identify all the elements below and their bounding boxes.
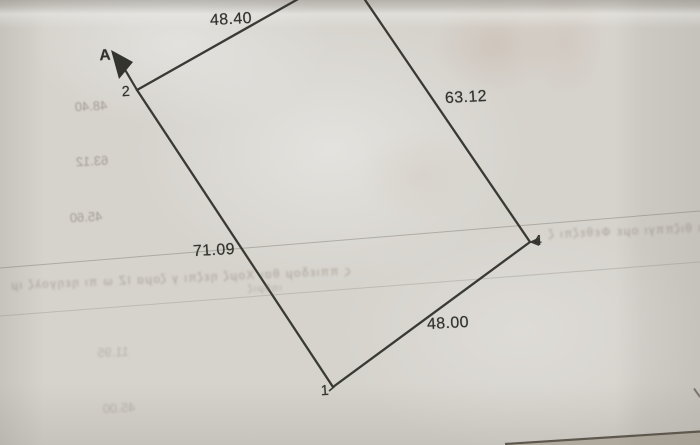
sketch-canvas (0, 0, 700, 445)
side-length-right: 63.12 (445, 88, 488, 108)
side-length-bottom: 48.00 (427, 314, 470, 334)
bleedthrough-number: 63.12 (75, 153, 108, 170)
direction-label-A: A (99, 47, 111, 66)
ruled-line-bleedthrough-1 (0, 211, 700, 268)
vertex-label-1: 1 (320, 383, 329, 399)
vertex-label-2: 2 (121, 84, 130, 100)
bleedthrough-number: 11.95 (97, 344, 129, 361)
photographed-survey-sketch: 48.40 63.12 71.09 48.00 A 2 4 1 48.40 63… (0, 0, 700, 445)
direction-arrow-head-icon (111, 50, 133, 79)
side-length-left: 71.09 (193, 241, 236, 261)
bleedthrough-text: ιηθμιζ (246, 283, 282, 296)
vertex-label-4: 4 (533, 233, 542, 249)
side-length-top: 48.40 (210, 10, 253, 30)
bleedthrough-number: 45.00 (102, 400, 135, 417)
bleedthrough-number: 48.40 (74, 98, 107, 115)
paper-edge-mark (694, 389, 700, 398)
parcel-boundary (137, 0, 530, 387)
bleedthrough-number: 45.60 (69, 209, 102, 226)
